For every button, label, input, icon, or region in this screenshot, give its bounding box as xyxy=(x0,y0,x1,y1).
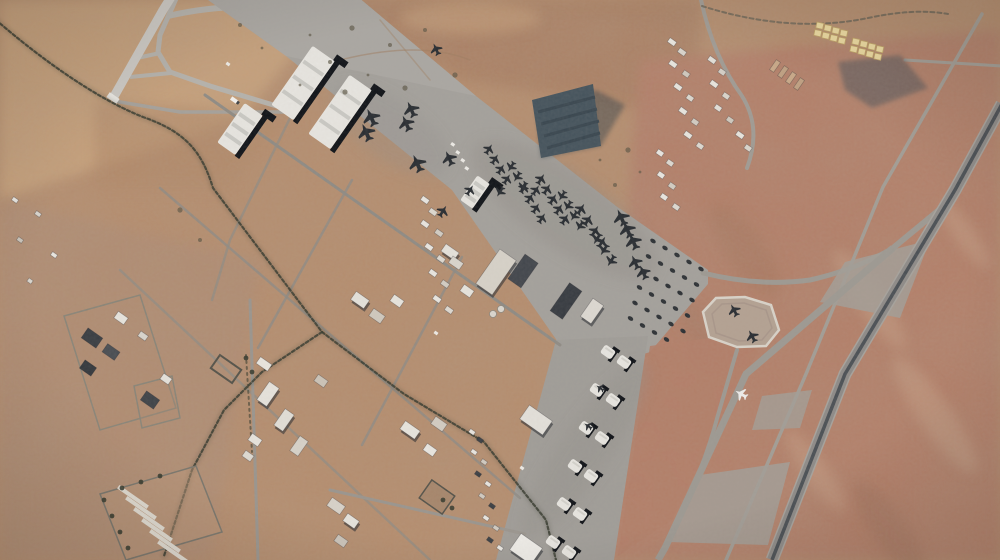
satellite-image: Aerial satellite photograph of an arid-r… xyxy=(0,0,1000,560)
satellite-image-stage: Aerial satellite photograph of an arid-r… xyxy=(0,0,1000,560)
vignette xyxy=(0,0,1000,560)
